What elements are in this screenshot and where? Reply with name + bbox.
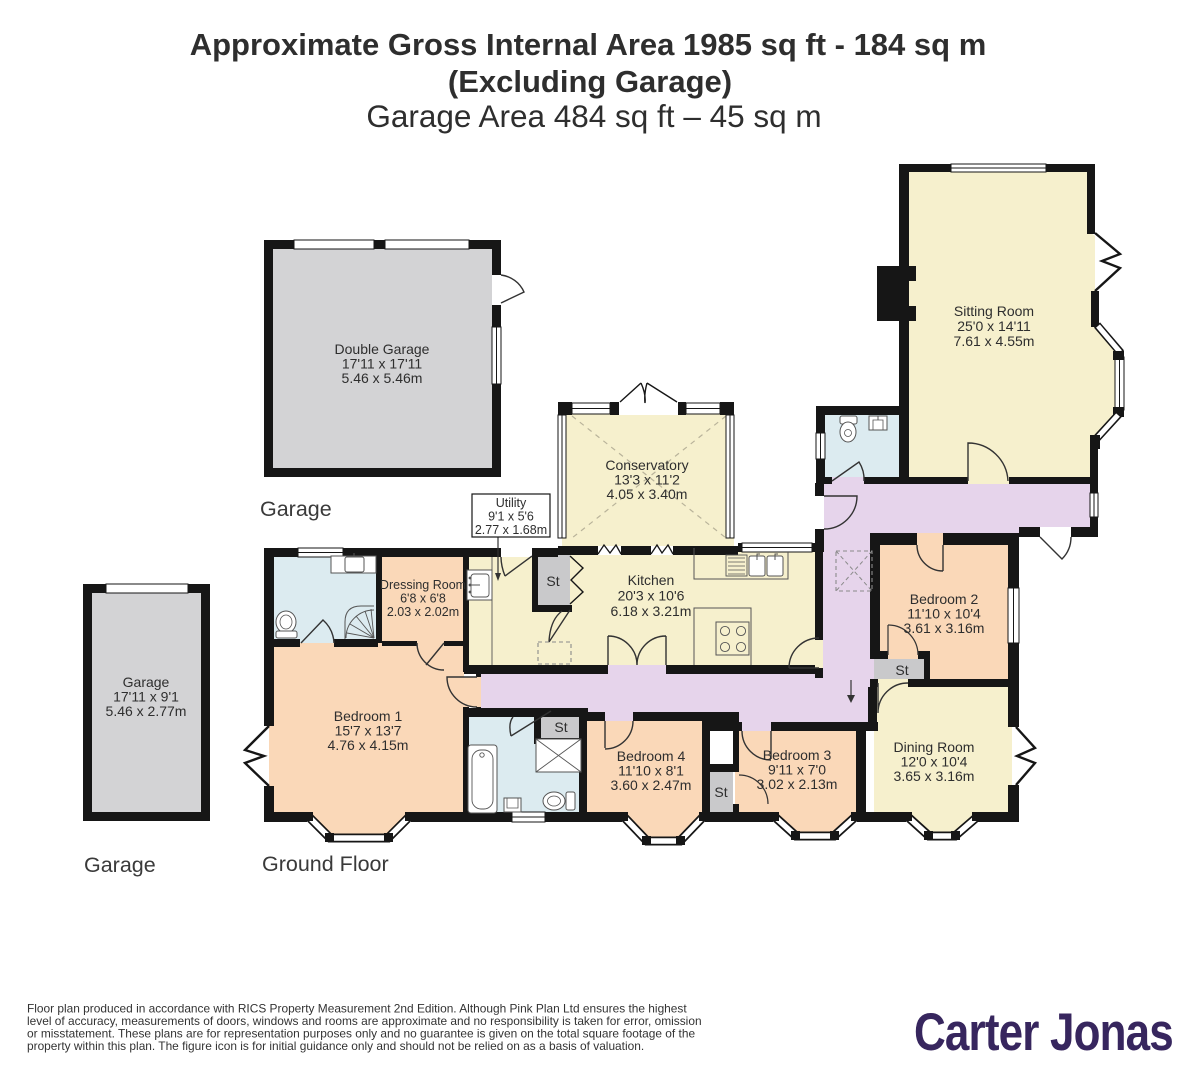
svg-text:(Excluding Garage): (Excluding Garage) [448,64,732,99]
svg-text:25'0 x 14'11: 25'0 x 14'11 [957,318,1031,334]
svg-text:Garage: Garage [260,497,332,521]
svg-text:7.61 x 4.55m: 7.61 x 4.55m [954,333,1035,349]
svg-text:6.18 x 3.21m: 6.18 x 3.21m [611,603,692,619]
svg-text:Dressing Room: Dressing Room [380,578,466,592]
svg-text:Approximate Gross Internal Are: Approximate Gross Internal Area 1985 sq … [190,27,987,62]
svg-text:6'8 x 6'8: 6'8 x 6'8 [400,592,446,606]
svg-text:3.65 x 3.16m: 3.65 x 3.16m [894,768,975,784]
svg-text:9'1 x 5'6: 9'1 x 5'6 [488,510,534,524]
svg-text:4.05 x 3.40m: 4.05 x 3.40m [607,486,688,502]
svg-text:St: St [554,719,567,735]
svg-text:4.76 x 4.15m: 4.76 x 4.15m [328,737,409,753]
svg-text:Carter Jonas: Carter Jonas [914,1003,1173,1062]
svg-text:Garage Area 484 sq ft – 45 sq: Garage Area 484 sq ft – 45 sq m [366,98,821,134]
svg-text:2.03 x 2.02m: 2.03 x 2.02m [387,605,459,619]
svg-text:3.61 x 3.16m: 3.61 x 3.16m [904,620,985,636]
svg-text:St: St [714,784,727,800]
svg-text:St: St [895,662,908,678]
svg-text:3.02 x 2.13m: 3.02 x 2.13m [757,776,838,792]
svg-text:property within this plan. The: property within this plan. The figure ic… [27,1039,644,1053]
svg-text:Kitchen: Kitchen [628,572,675,588]
svg-text:2.77 x 1.68m: 2.77 x 1.68m [475,523,547,537]
svg-text:3.60 x 2.47m: 3.60 x 2.47m [611,777,692,793]
svg-text:Ground Floor: Ground Floor [262,852,389,876]
svg-text:Sitting Room: Sitting Room [954,303,1034,319]
svg-text:5.46 x 5.46m: 5.46 x 5.46m [342,370,423,386]
svg-text:Garage: Garage [84,853,156,877]
svg-text:Utility: Utility [496,496,527,510]
svg-text:20'3 x 10'6: 20'3 x 10'6 [618,588,685,604]
svg-text:St: St [546,573,559,589]
svg-text:5.46 x 2.77m: 5.46 x 2.77m [106,703,187,719]
